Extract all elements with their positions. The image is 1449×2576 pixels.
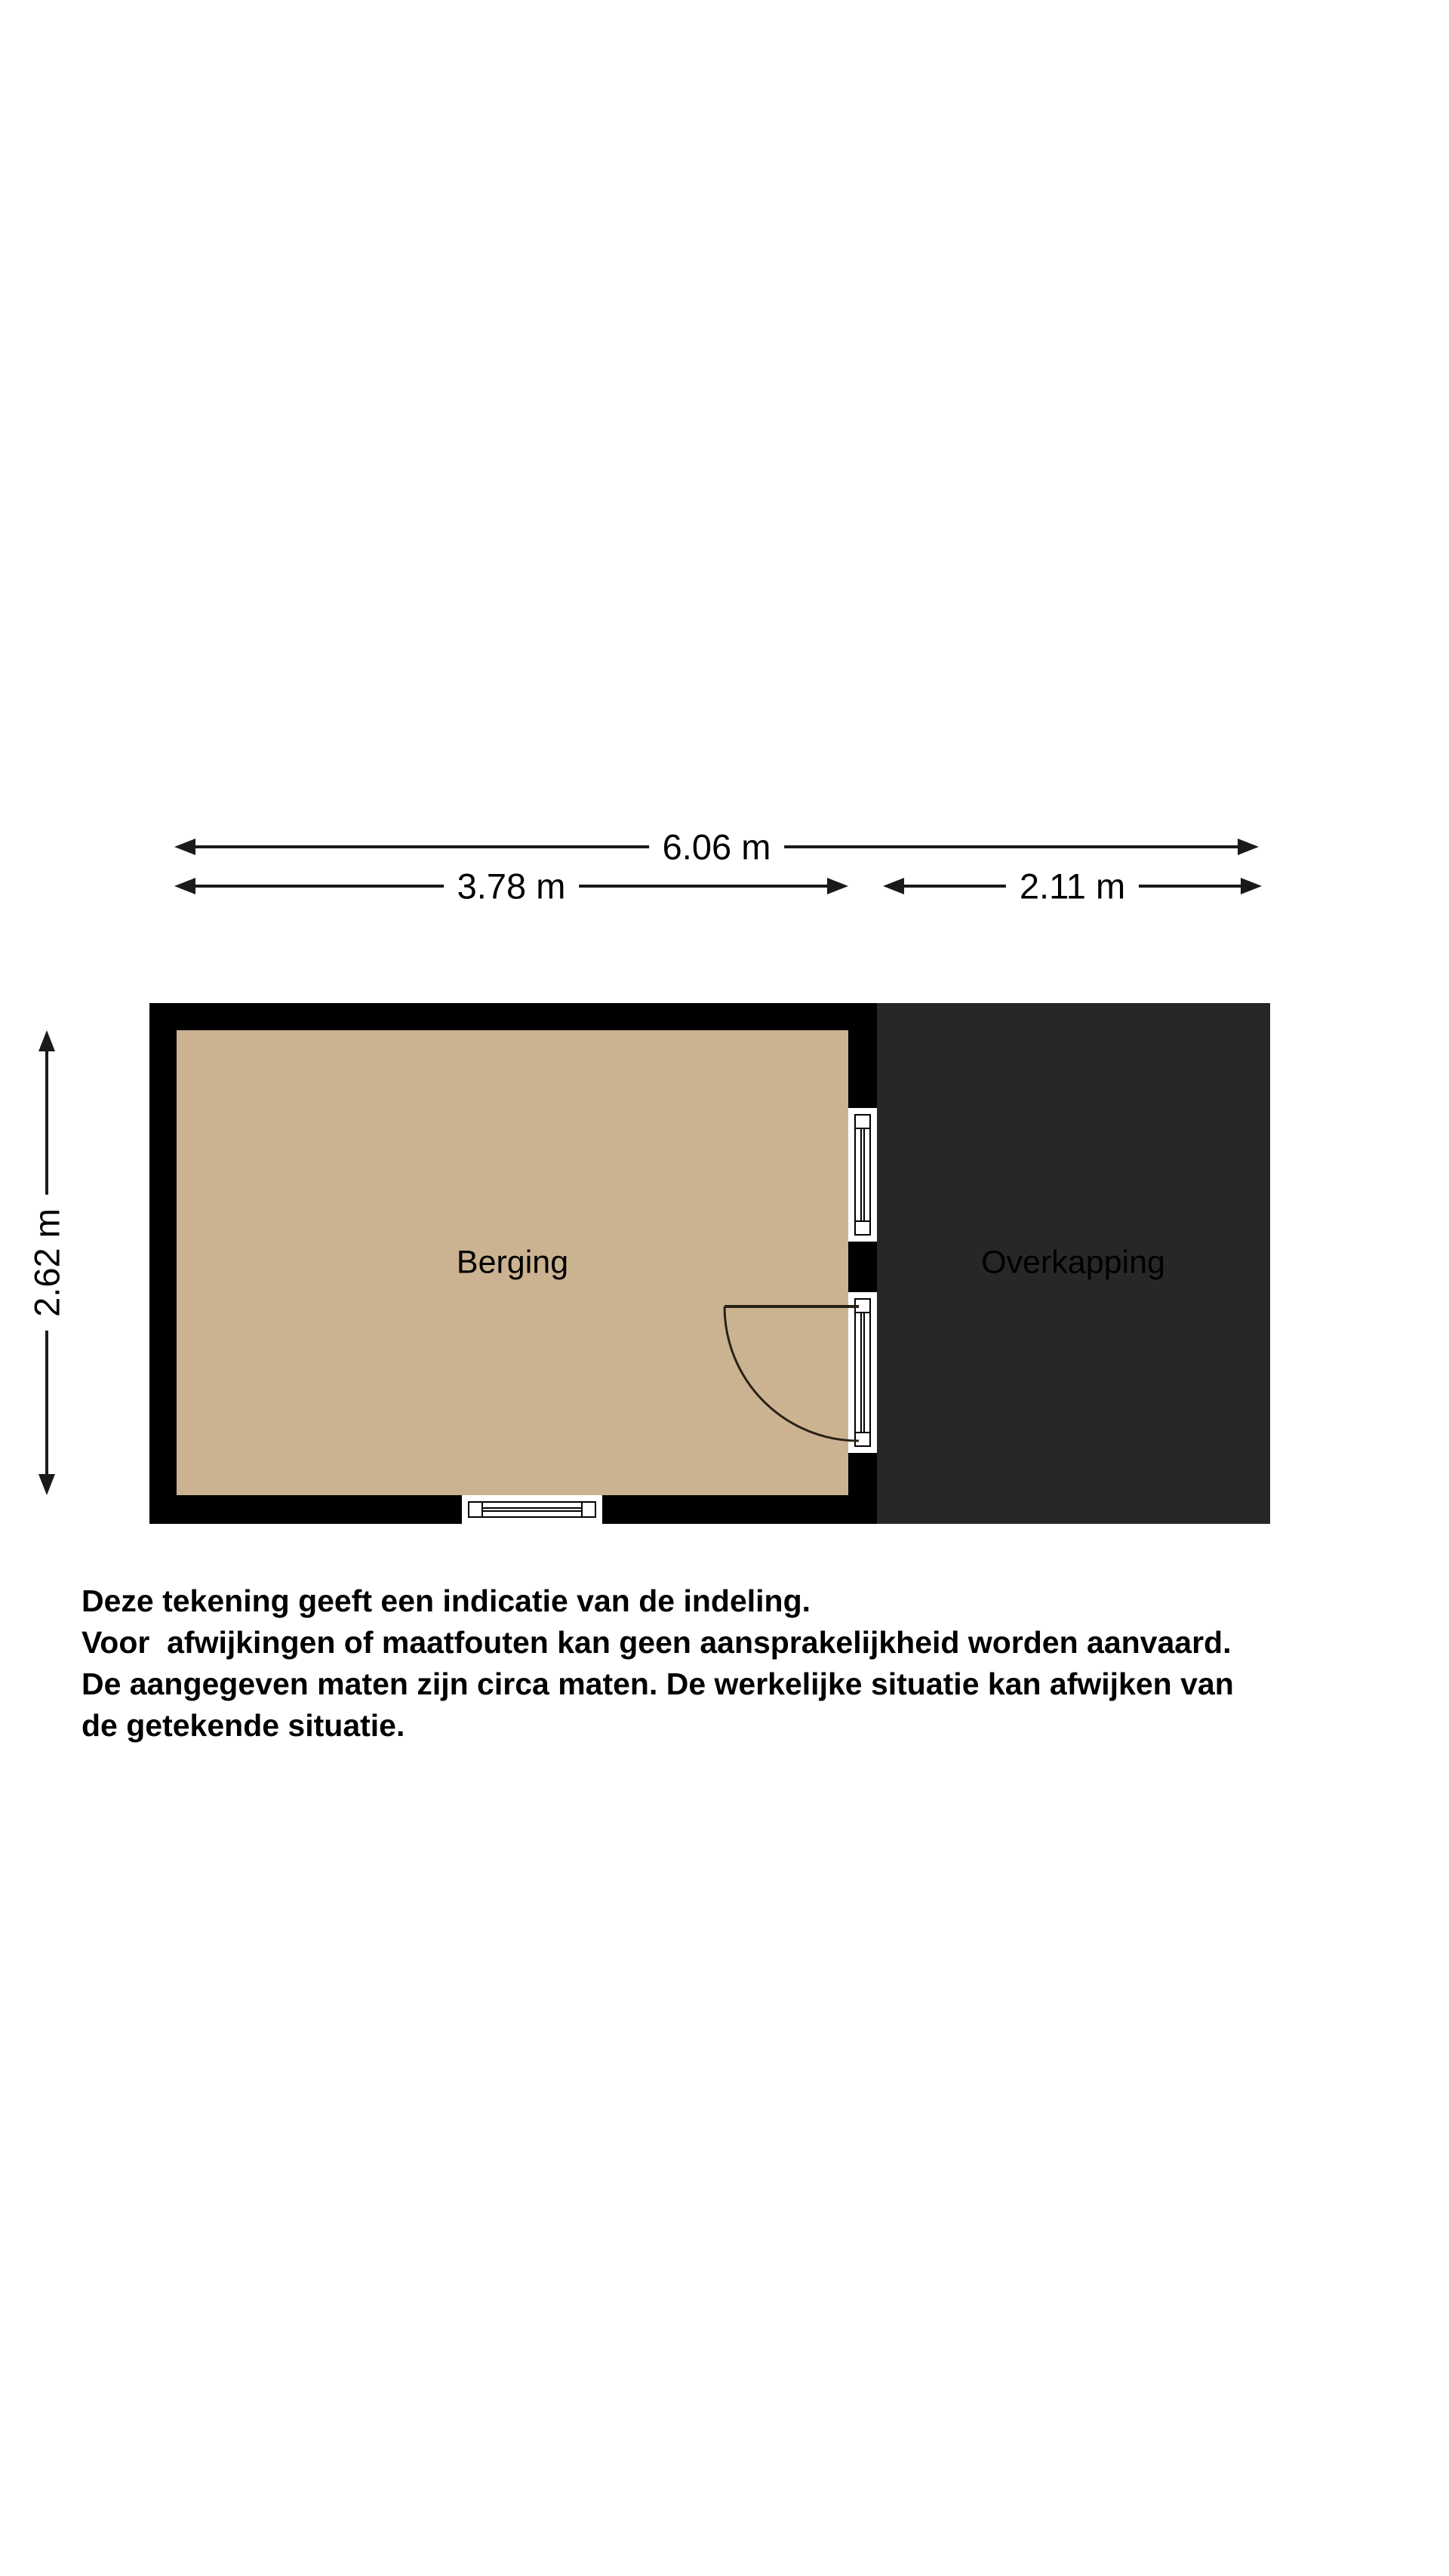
dimension-label-overkapping: 2.11 m [1006, 866, 1139, 907]
arrow-left-icon [174, 839, 195, 855]
arrow-up-icon [38, 1030, 55, 1051]
window-cap [854, 1220, 871, 1222]
disclaimer-line: De aangegeven maten zijn circa maten. De… [82, 1663, 1432, 1705]
window-glass [483, 1507, 581, 1512]
window-right-wall [848, 1108, 877, 1242]
door-cap [854, 1432, 871, 1433]
dimension-label-total: 6.06 m [649, 826, 785, 868]
arrow-right-icon [1241, 878, 1262, 894]
disclaimer-line: de getekende situatie. [82, 1705, 1432, 1747]
arrow-down-icon [38, 1474, 55, 1495]
floorplan-page: 6.06 m 3.78 m 2.11 m 2.62 m [0, 0, 1449, 2576]
room-label-overkapping: Overkapping [981, 1245, 1165, 1282]
disclaimer-text: Deze tekening geeft een indicatie van de… [82, 1580, 1432, 1747]
arrow-left-icon [174, 878, 195, 894]
arrow-right-icon [1238, 839, 1259, 855]
door-glass [860, 1313, 865, 1432]
disclaimer-line: Deze tekening geeft een indicatie van de… [82, 1580, 1432, 1622]
dimension-label-height: 2.62 m [26, 1195, 68, 1331]
window-glass [860, 1129, 865, 1220]
window-bottom-wall [462, 1495, 602, 1524]
dimension-label-berging: 3.78 m [444, 866, 580, 907]
arrow-left-icon [883, 878, 904, 894]
door-glazing [848, 1292, 877, 1453]
window-cap [581, 1501, 583, 1518]
room-label-berging: Berging [457, 1245, 568, 1282]
arrow-right-icon [827, 878, 848, 894]
disclaimer-line: Voor afwijkingen of maatfouten kan geen … [82, 1622, 1432, 1663]
